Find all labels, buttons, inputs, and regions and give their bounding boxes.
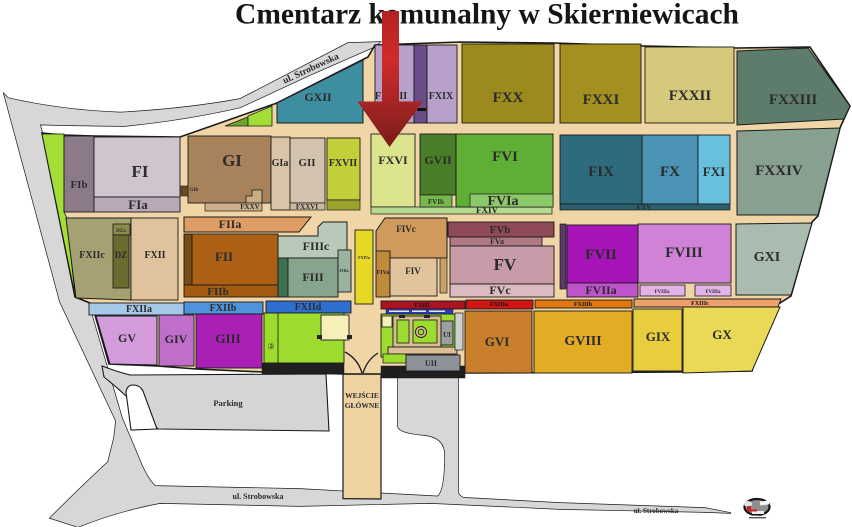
svg-text:FVII: FVII bbox=[585, 247, 617, 263]
svg-text:FXII: FXII bbox=[144, 250, 165, 261]
svg-text:GIa: GIa bbox=[272, 158, 289, 169]
svg-text:GI: GI bbox=[222, 151, 242, 170]
svg-text:FIVc: FIVc bbox=[396, 224, 416, 234]
svg-text:FVIIIa: FVIIIa bbox=[654, 290, 670, 295]
svg-text:FXV: FXV bbox=[637, 203, 651, 211]
svg-text:FVIIa: FVIIa bbox=[585, 283, 616, 297]
svg-text:FIIb: FIIb bbox=[207, 286, 228, 298]
svg-text:FVc: FVc bbox=[489, 283, 511, 297]
svg-text:FX: FX bbox=[660, 164, 680, 180]
svg-text:FXVI: FXVI bbox=[378, 153, 408, 167]
svg-text:FXIIb: FXIIb bbox=[210, 303, 237, 314]
svg-text:FXIIc: FXIIc bbox=[79, 250, 105, 261]
svg-text:FXXIII: FXXIII bbox=[769, 92, 818, 108]
svg-text:FIIIc: FIIIc bbox=[303, 239, 330, 253]
svg-text:FIb: FIb bbox=[70, 179, 87, 191]
svg-text:FXXII: FXXII bbox=[669, 88, 712, 104]
svg-text:FV: FV bbox=[494, 255, 517, 274]
svg-text:FVIa: FVIa bbox=[487, 194, 518, 209]
svg-text:GŁÓWNE: GŁÓWNE bbox=[345, 400, 380, 410]
svg-text:FXIII: FXIII bbox=[414, 303, 430, 309]
svg-text:FIIIa: FIIIa bbox=[339, 268, 348, 273]
svg-text:FVa: FVa bbox=[490, 237, 504, 246]
svg-text:FXXI: FXXI bbox=[583, 92, 620, 108]
svg-text:FIX: FIX bbox=[588, 164, 614, 180]
svg-text:FIIa: FIIa bbox=[219, 217, 242, 231]
svg-text:GIV: GIV bbox=[165, 332, 188, 346]
svg-text:GVI: GVI bbox=[485, 334, 510, 349]
svg-text:FXIIa: FXIIa bbox=[126, 304, 152, 315]
svg-text:UII: UII bbox=[425, 359, 437, 368]
svg-text:WEJŚCIE: WEJŚCIE bbox=[345, 390, 379, 400]
svg-text:FXIIIa: FXIIIa bbox=[490, 302, 508, 308]
svg-text:GII: GII bbox=[298, 157, 315, 169]
svg-text:FVI: FVI bbox=[492, 149, 518, 165]
svg-text:FVIIIa: FVIIIa bbox=[705, 290, 721, 295]
svg-text:GV: GV bbox=[118, 331, 136, 345]
svg-text:FIII: FIII bbox=[302, 270, 324, 284]
svg-text:FII: FII bbox=[215, 249, 233, 264]
svg-text:FXIIIc: FXIIIc bbox=[691, 301, 709, 307]
svg-text:FXXVI: FXXVI bbox=[296, 203, 318, 211]
svg-text:GX: GX bbox=[712, 327, 732, 342]
svg-text:GVIII: GVIII bbox=[564, 334, 601, 349]
svg-text:DZ: DZ bbox=[115, 250, 128, 260]
svg-text:FXXIV: FXXIV bbox=[755, 163, 803, 179]
svg-text:FVIII: FVIII bbox=[665, 245, 703, 261]
svg-text:FXXV: FXXV bbox=[240, 203, 259, 211]
svg-text:FVIb: FVIb bbox=[428, 198, 444, 206]
svg-text:FXIId: FXIId bbox=[295, 302, 322, 313]
svg-text:FXIX: FXIX bbox=[429, 91, 454, 102]
svg-text:FIV: FIV bbox=[405, 266, 421, 276]
svg-text:FVb: FVb bbox=[490, 224, 511, 236]
svg-text:FXX: FXX bbox=[493, 90, 524, 106]
svg-text:GXII: GXII bbox=[304, 90, 332, 104]
svg-text:FIVa: FIVa bbox=[377, 270, 390, 276]
svg-text:Parking: Parking bbox=[213, 398, 243, 408]
svg-text:FXIIIb: FXIIIb bbox=[574, 302, 593, 308]
svg-text:ul. Strobowska: ul. Strobowska bbox=[634, 507, 679, 515]
svg-text:GIII: GIII bbox=[215, 331, 240, 346]
svg-text:Cmentarz komunalny w Skierniew: Cmentarz komunalny w Skierniewicach bbox=[235, 0, 739, 31]
svg-text:FXVII: FXVII bbox=[329, 158, 357, 169]
svg-text:FXIVa: FXIVa bbox=[358, 255, 369, 260]
svg-text:GIX: GIX bbox=[646, 329, 671, 344]
svg-text:UI: UI bbox=[443, 331, 451, 339]
svg-text:③: ③ bbox=[267, 342, 274, 351]
svg-text:FI: FI bbox=[132, 162, 149, 181]
svg-text:GVII: GVII bbox=[424, 153, 452, 167]
svg-text:FIa: FIa bbox=[128, 197, 148, 212]
svg-text:GIb: GIb bbox=[190, 188, 199, 193]
svg-text:FXI: FXI bbox=[703, 164, 725, 179]
svg-text:DZa: DZa bbox=[116, 229, 126, 234]
svg-text:GXI: GXI bbox=[754, 250, 780, 265]
svg-text:ul. Strobowska: ul. Strobowska bbox=[233, 492, 284, 501]
